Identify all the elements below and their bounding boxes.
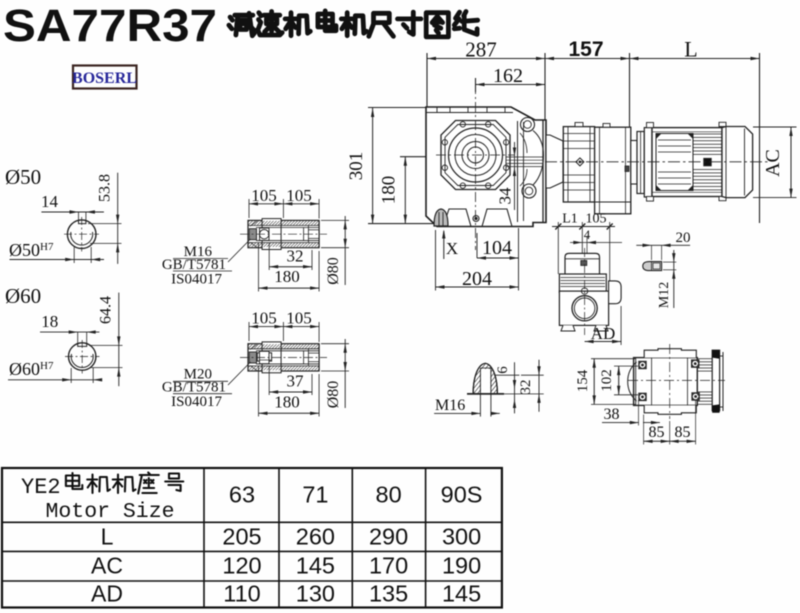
svg-text:135: 135: [369, 581, 408, 607]
svg-text:AC: AC: [91, 553, 123, 579]
svg-text:AC: AC: [762, 149, 784, 177]
svg-text:180: 180: [274, 393, 300, 412]
svg-text:Motor Size: Motor Size: [45, 500, 174, 524]
svg-text:180: 180: [379, 176, 400, 205]
svg-text:145: 145: [296, 553, 335, 579]
svg-text:34: 34: [496, 187, 515, 205]
svg-text:20: 20: [676, 230, 691, 246]
svg-text:145: 145: [442, 581, 481, 607]
svg-text:102: 102: [599, 369, 615, 392]
svg-text:Ø80: Ø80: [325, 381, 342, 409]
svg-text:32: 32: [518, 380, 534, 395]
svg-text:BOSERL: BOSERL: [72, 70, 137, 87]
svg-text:301: 301: [346, 152, 367, 181]
svg-text:6: 6: [495, 366, 511, 374]
svg-text:X: X: [446, 239, 458, 258]
svg-text:YE2: YE2: [21, 475, 61, 500]
svg-text:4: 4: [584, 227, 591, 242]
svg-text:90S: 90S: [441, 482, 483, 508]
svg-text:AD: AD: [91, 581, 123, 607]
svg-text:105: 105: [251, 186, 277, 205]
svg-text:162: 162: [493, 65, 523, 87]
svg-text:AD: AD: [591, 324, 616, 343]
svg-text:37: 37: [287, 372, 305, 391]
svg-text:110: 110: [223, 581, 260, 607]
svg-text:105: 105: [286, 309, 312, 328]
svg-text:18: 18: [41, 312, 58, 331]
svg-text:204: 204: [462, 268, 492, 290]
svg-text:38: 38: [604, 406, 620, 423]
svg-text:L: L: [101, 524, 114, 550]
svg-text:IS04017: IS04017: [171, 394, 222, 410]
svg-text:300: 300: [442, 524, 481, 550]
svg-text:287: 287: [465, 38, 497, 62]
svg-text:120: 120: [222, 553, 261, 579]
svg-text:190: 190: [442, 553, 481, 579]
svg-text:260: 260: [296, 524, 335, 550]
svg-text:53.8: 53.8: [97, 174, 114, 202]
svg-text:170: 170: [369, 553, 408, 579]
svg-text:85: 85: [649, 424, 665, 441]
svg-text:85: 85: [675, 424, 691, 441]
svg-text:Ø80: Ø80: [325, 257, 342, 285]
svg-text:205: 205: [222, 524, 261, 550]
svg-text:L1: L1: [562, 212, 578, 227]
svg-text:Ø50: Ø50: [5, 165, 41, 189]
svg-text:290: 290: [369, 524, 408, 550]
svg-text:Ø60: Ø60: [5, 284, 41, 308]
svg-text:L: L: [684, 37, 697, 62]
svg-text:105: 105: [286, 186, 312, 205]
svg-text:105: 105: [586, 212, 607, 227]
svg-text:14: 14: [41, 192, 59, 211]
svg-text:SA77R37: SA77R37: [3, 0, 217, 51]
svg-text:71: 71: [302, 482, 328, 508]
svg-text:63: 63: [229, 482, 255, 508]
svg-text:180: 180: [274, 267, 300, 286]
svg-text:64.4: 64.4: [98, 296, 115, 324]
svg-text:M16: M16: [435, 397, 465, 414]
svg-text:M12: M12: [657, 282, 672, 308]
svg-text:130: 130: [296, 581, 335, 607]
svg-text:104: 104: [482, 237, 512, 259]
svg-text:157: 157: [568, 38, 603, 61]
svg-text:32: 32: [287, 247, 304, 266]
svg-text:105: 105: [251, 309, 277, 328]
svg-text:IS04017: IS04017: [171, 272, 222, 288]
svg-text:80: 80: [376, 482, 402, 508]
svg-text:154: 154: [575, 369, 591, 392]
